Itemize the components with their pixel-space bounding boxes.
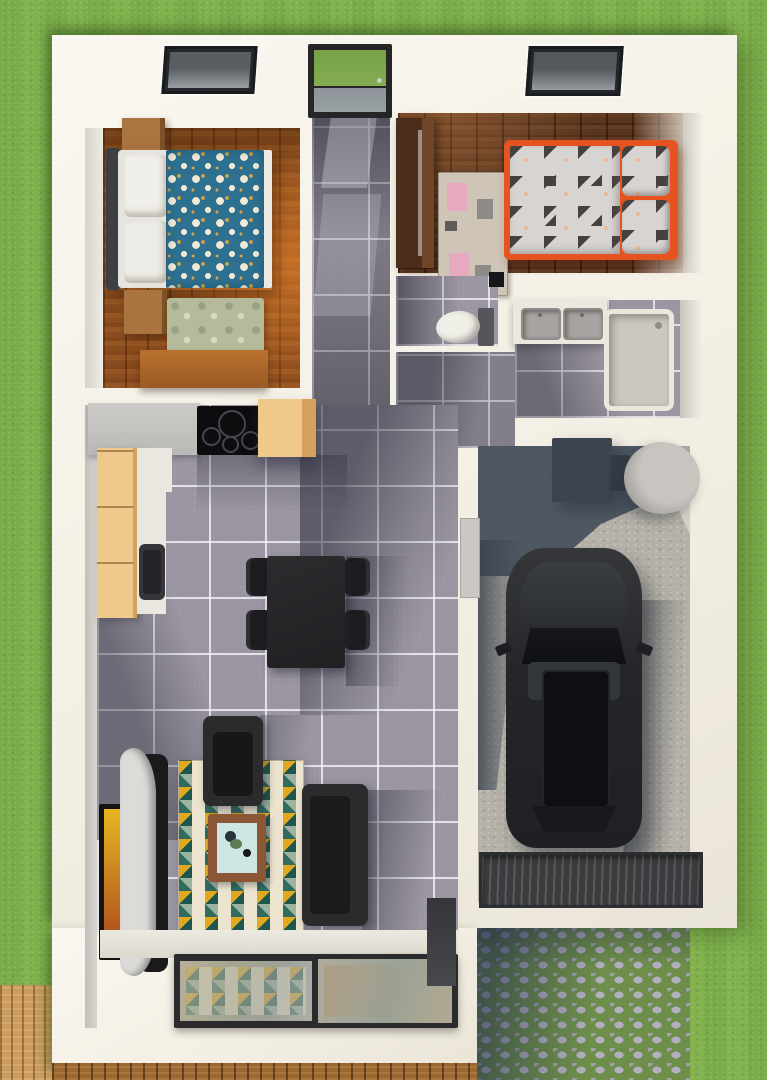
burner (218, 410, 246, 438)
armchair-seat (213, 732, 253, 796)
annex-wall-face-dark (427, 898, 456, 986)
wardrobe (396, 118, 434, 268)
burner (222, 436, 239, 453)
bedroom-desk (140, 350, 268, 388)
door-panel (180, 961, 312, 1021)
kids-bed-duvet (510, 146, 620, 254)
decor-item (230, 839, 242, 849)
service-door (460, 518, 480, 598)
bed-footboard (264, 150, 272, 288)
utility-box (552, 438, 612, 502)
tall-cabinet (258, 399, 316, 457)
rug-block-gray (477, 199, 493, 219)
wardrobe-front (422, 118, 434, 268)
double-sink-vanity (513, 298, 607, 344)
front-door (308, 44, 392, 118)
wardrobe-mirror (418, 130, 422, 256)
kids-bed-pillow (622, 200, 670, 254)
armchair (203, 716, 263, 806)
living-wall-face (85, 405, 97, 1028)
shower-drain (655, 322, 662, 329)
cabinet-side (302, 399, 316, 457)
skylight-glass (532, 52, 618, 90)
double-bed (106, 148, 272, 290)
toilet (436, 308, 494, 346)
car-glass-roof (542, 670, 610, 808)
skylight-kids (525, 46, 623, 96)
dining-chair (344, 610, 370, 650)
skylight-master (161, 46, 257, 94)
faucet (538, 313, 542, 317)
dining-table (267, 556, 345, 668)
sink-bowl (143, 550, 161, 594)
kids-room-wall-face (683, 113, 702, 273)
toilet-tank (478, 308, 494, 346)
bed-pillow (124, 221, 168, 283)
car-hood (520, 562, 628, 626)
front-door-glass-bottom (314, 88, 386, 112)
floorplan-render (0, 0, 767, 1080)
hall-shadow (312, 108, 390, 408)
hall-light-patch (321, 116, 377, 188)
wood-deck-corner (0, 985, 52, 1080)
door-handle (377, 78, 382, 83)
car (506, 548, 642, 848)
decor-item (243, 849, 251, 857)
sink-basin (521, 308, 561, 340)
kitchen-counter-corner (137, 448, 172, 492)
sink-basin (563, 308, 603, 340)
nightstand-bottom (124, 290, 167, 334)
entry-hall-floor (312, 108, 390, 408)
coffee-table-top (217, 823, 257, 873)
bathroom-wall-face (680, 300, 702, 418)
kids-bed-pillow (622, 146, 670, 196)
sofa (302, 784, 368, 926)
master-bedroom-wall-face (85, 128, 103, 388)
kids-bed (504, 140, 678, 260)
sofa-seat (310, 796, 350, 914)
bed-pillow (124, 155, 168, 217)
cobblestone-driveway (477, 928, 690, 1080)
shower-tray (604, 309, 674, 411)
base-cabinets (97, 448, 137, 618)
induction-cooktop (197, 406, 261, 455)
kitchen-sink (139, 544, 165, 600)
front-door-glass-top (314, 50, 386, 86)
toilet-bowl (434, 309, 481, 345)
car-windshield (522, 628, 626, 664)
driveway-shadow (477, 928, 690, 1080)
dining-chair (344, 558, 370, 596)
sliding-glass-door (174, 954, 458, 1028)
hall-light-patch (313, 194, 382, 316)
wall-vent (489, 272, 504, 287)
garage-door-mat (479, 852, 703, 908)
rug-block-pink (447, 183, 467, 211)
water-tank (624, 442, 700, 514)
coffee-table (208, 814, 266, 882)
bedroom-green-rug (167, 298, 264, 353)
burner (202, 427, 221, 446)
rug-block-dark (445, 221, 457, 231)
car-rear-window (532, 806, 616, 832)
bed-duvet-floral (166, 150, 264, 288)
glass-reflection (186, 967, 306, 1015)
wood-deck-bottom (52, 1063, 477, 1080)
faucet (580, 313, 584, 317)
skylight-glass (168, 52, 252, 88)
